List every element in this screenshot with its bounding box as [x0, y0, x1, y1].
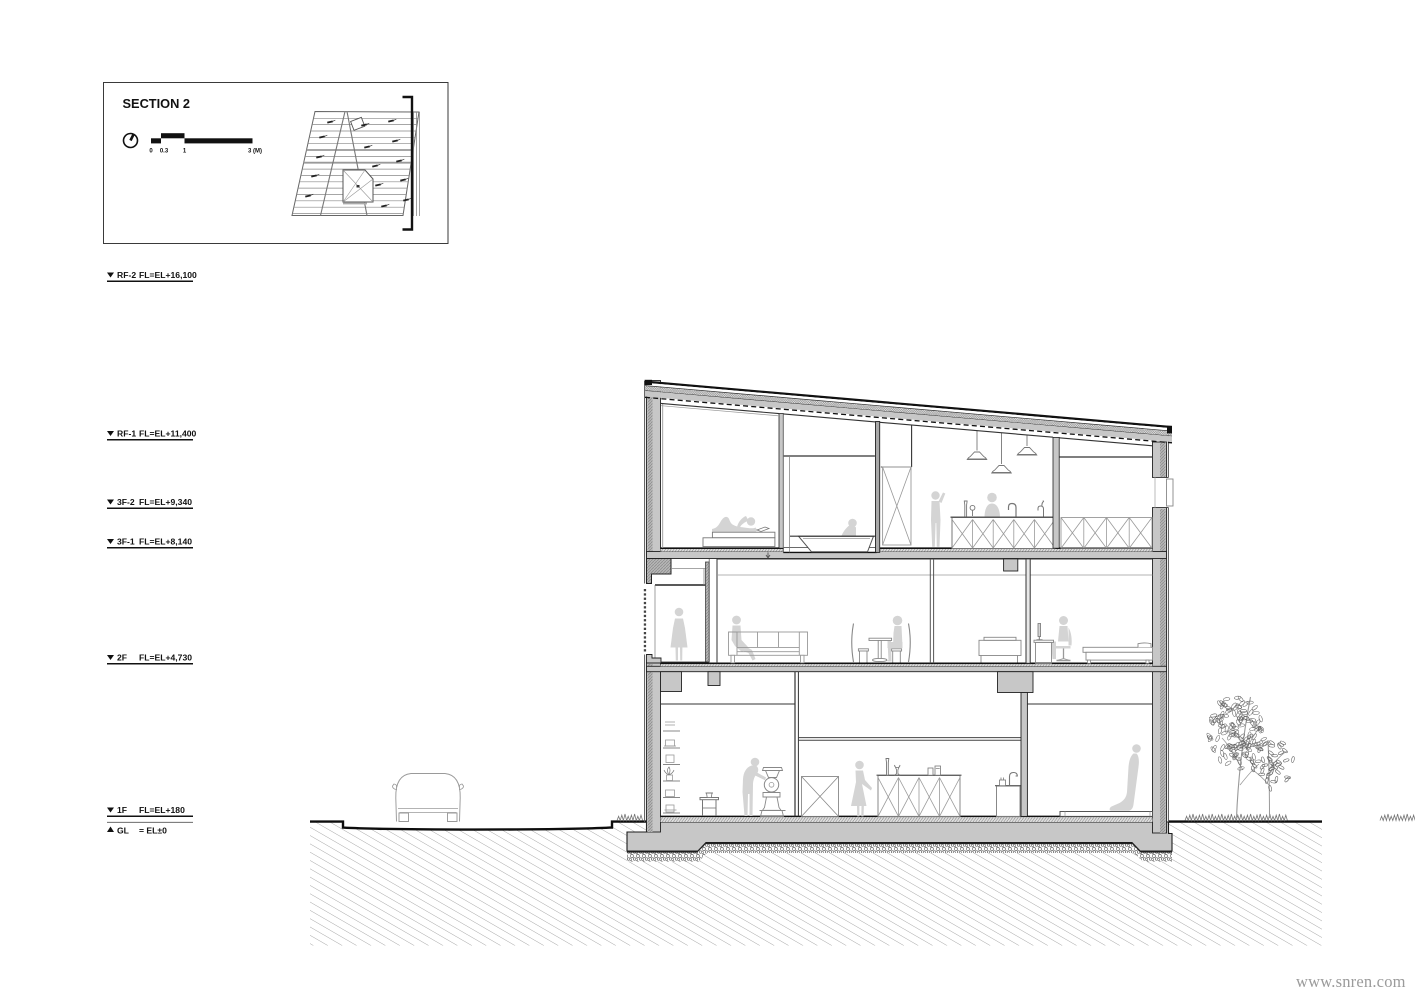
svg-text:FL=EL+8,140: FL=EL+8,140 — [139, 537, 192, 547]
svg-text:GL: GL — [117, 826, 129, 836]
svg-text:FL=EL+9,340: FL=EL+9,340 — [139, 497, 192, 507]
svg-text:FL=EL+4,730: FL=EL+4,730 — [139, 653, 192, 663]
svg-text:RF-2: RF-2 — [117, 270, 136, 280]
svg-text:1F: 1F — [117, 805, 127, 815]
svg-text:3F-1: 3F-1 — [117, 537, 135, 547]
svg-text:FL=EL+11,400: FL=EL+11,400 — [139, 429, 197, 439]
svg-text:SECTION 2: SECTION 2 — [123, 96, 191, 111]
svg-text:FL=EL+16,100: FL=EL+16,100 — [139, 270, 197, 280]
svg-text:RF-1: RF-1 — [117, 429, 136, 439]
svg-text:2F: 2F — [117, 653, 127, 663]
svg-text:3F-2: 3F-2 — [117, 497, 135, 507]
svg-text:FL=EL+180: FL=EL+180 — [139, 805, 185, 815]
svg-text:www.snren.com: www.snren.com — [1296, 972, 1406, 991]
svg-text:0.3: 0.3 — [160, 149, 169, 155]
svg-text:= EL±0: = EL±0 — [139, 826, 167, 836]
svg-text:3 (M): 3 (M) — [248, 149, 262, 155]
